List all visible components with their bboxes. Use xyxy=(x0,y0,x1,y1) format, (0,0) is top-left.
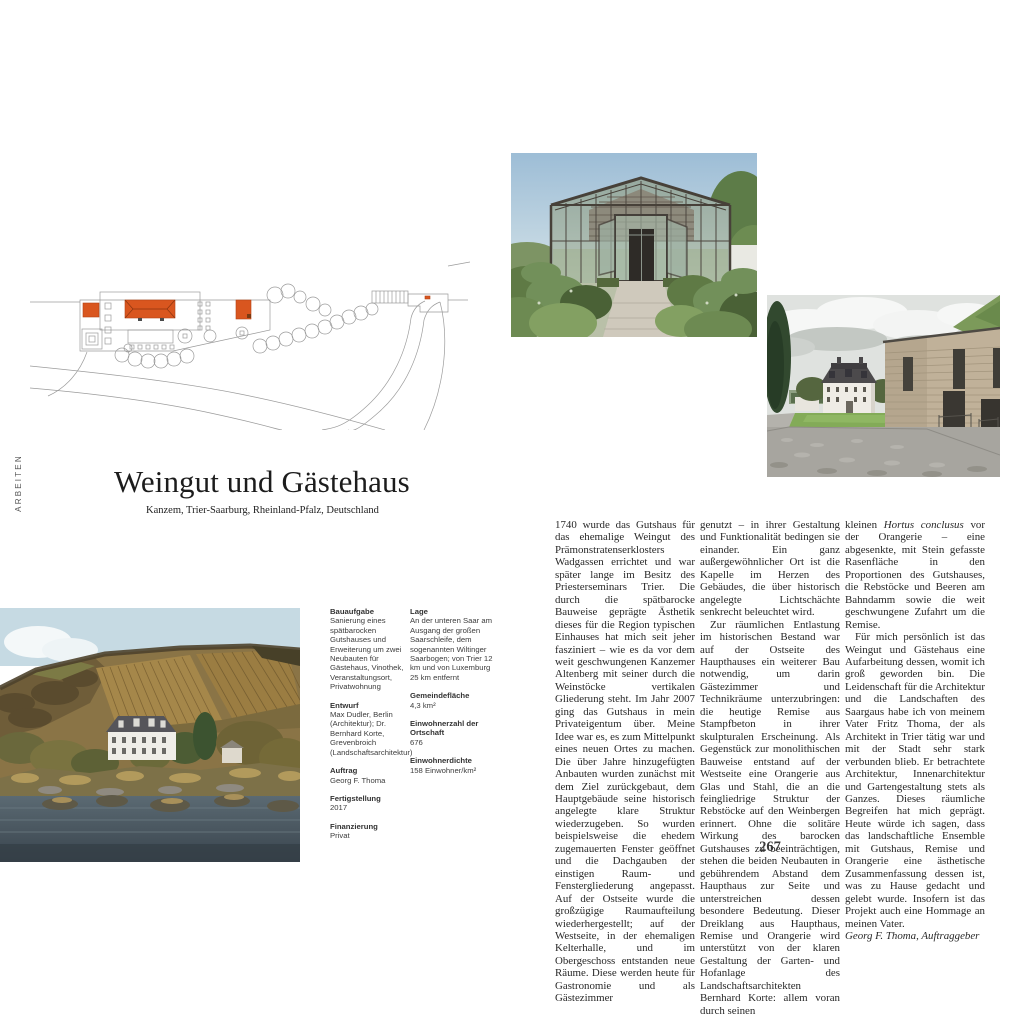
info-label: Gemeindefläche xyxy=(410,691,494,700)
info-section-fertigstellung: Fertigstellung 2017 xyxy=(330,794,404,813)
info-label: Bauaufgabe xyxy=(330,607,404,616)
info-section-einwohnerdichte: Einwohnerdichte 158 Einwohner/km² xyxy=(410,756,494,775)
info-label: Auftrag xyxy=(330,766,404,775)
photo-landscape xyxy=(0,608,300,862)
essay-signature: Georg F. Thoma, Auftraggeber xyxy=(845,930,985,942)
info-label: Lage xyxy=(410,607,494,616)
essay-paragraph: genutzt – in ihrer Gestaltung und Funkti… xyxy=(700,519,840,619)
info-label: Finanzierung xyxy=(330,822,404,831)
info-value: 676 xyxy=(410,738,494,747)
essay-column-2: genutzt – in ihrer Gestaltung und Funkti… xyxy=(700,519,840,1017)
info-section-finanzierung: Finanzierung Privat xyxy=(330,822,404,841)
info-value: Georg F. Thoma xyxy=(330,776,404,785)
spine-label: ARBEITEN xyxy=(14,448,24,518)
info-value: Sanierung eines spätbarocken Gutshauses … xyxy=(330,616,404,691)
info-section-entwurf: Entwurf Max Dudler, Berlin (Architektur)… xyxy=(330,701,404,757)
info-value: Privat xyxy=(330,831,404,840)
essay-paragraph: Zur räumlichen Entlastung im historische… xyxy=(700,619,840,1018)
info-section-gemeindeflaeche: Gemeindefläche 4,3 km² xyxy=(410,691,494,710)
info-value: 2017 xyxy=(330,803,404,812)
info-value: Max Dudler, Berlin (Architektur); Dr. Be… xyxy=(330,710,404,757)
page-number: 267 xyxy=(735,839,805,856)
photo-remise xyxy=(767,295,1000,477)
info-label: Entwurf xyxy=(330,701,404,710)
site-plan-drawing xyxy=(30,140,470,430)
info-value: 4,3 km² xyxy=(410,701,494,710)
info-label: Fertigstellung xyxy=(330,794,404,803)
essay-paragraph: kleinen Hortus conclusus vor der Oranger… xyxy=(845,519,985,631)
latin-term: Hortus conclusus xyxy=(884,519,964,531)
project-info-column-a: Bauaufgabe Sanierung eines spätbarocken … xyxy=(330,607,404,850)
info-label: Einwohnerdichte xyxy=(410,756,494,765)
info-section-bauaufgabe: Bauaufgabe Sanierung eines spätbarocken … xyxy=(330,607,404,692)
page-title: Weingut und Gästehaus xyxy=(114,464,410,500)
info-section-auftrag: Auftrag Georg F. Thoma xyxy=(330,766,404,785)
essay-paragraph: 1740 wurde das Gutshaus für das ehemalig… xyxy=(555,519,695,1005)
info-section-lage: Lage An der unteren Saar am Ausgang der … xyxy=(410,607,494,682)
info-section-einwohnerzahl: Einwohnerzahl der Ortschaft 676 xyxy=(410,719,494,747)
info-value: An der unteren Saar am Ausgang der große… xyxy=(410,616,494,682)
project-info-column-b: Lage An der unteren Saar am Ausgang der … xyxy=(410,607,494,784)
page-subtitle: Kanzem, Trier-Saarburg, Rheinland-Pfalz,… xyxy=(146,505,379,516)
info-value: 158 Einwohner/km² xyxy=(410,766,494,775)
photo-orangerie xyxy=(511,153,757,337)
essay-column-1: 1740 wurde das Gutshaus für das ehemalig… xyxy=(555,519,695,1005)
site-plan-svg xyxy=(30,140,470,430)
essay-paragraph: Für mich persönlich ist das Weingut und … xyxy=(845,631,985,930)
essay-column-3: kleinen Hortus conclusus vor der Oranger… xyxy=(845,519,985,942)
info-label: Einwohnerzahl der Ortschaft xyxy=(410,719,494,738)
